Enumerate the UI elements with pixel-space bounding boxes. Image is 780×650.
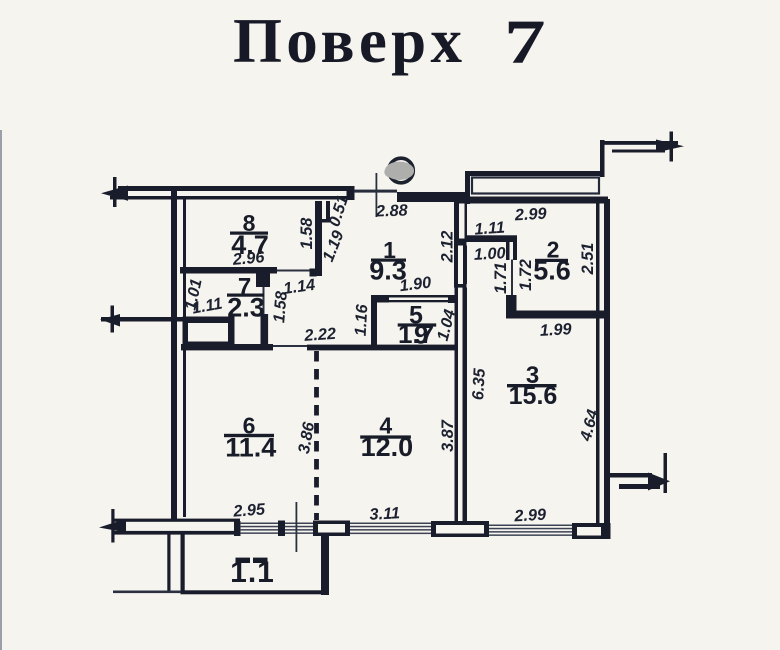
svg-text:2.99: 2.99: [513, 205, 547, 225]
svg-text:2.99: 2.99: [513, 506, 547, 526]
svg-text:1.16: 1.16: [352, 303, 372, 337]
svg-text:1.99: 1.99: [539, 320, 572, 340]
svg-text:1.90: 1.90: [399, 273, 433, 295]
svg-text:2.12: 2.12: [439, 231, 457, 264]
svg-text:1.11: 1.11: [474, 218, 506, 238]
svg-text:1.72: 1.72: [517, 259, 535, 291]
svg-text:3.87: 3.87: [439, 419, 457, 452]
svg-text:7: 7: [504, 6, 546, 76]
svg-text:2.88: 2.88: [375, 201, 409, 220]
svg-text:2.95: 2.95: [232, 500, 267, 520]
svg-text:2.3: 2.3: [227, 293, 265, 323]
svg-text:1.00: 1.00: [473, 244, 506, 264]
svg-text:2.22: 2.22: [303, 325, 337, 345]
svg-text:1.58: 1.58: [298, 217, 316, 250]
svg-text:1.71: 1.71: [492, 262, 510, 294]
svg-text:6.35: 6.35: [469, 367, 489, 401]
svg-text:Поверх: Поверх: [233, 6, 466, 76]
svg-text:2.96: 2.96: [231, 248, 266, 269]
svg-text:3.11: 3.11: [369, 504, 400, 524]
svg-text:1.58: 1.58: [270, 290, 291, 324]
svg-text:2.51: 2.51: [579, 243, 597, 276]
